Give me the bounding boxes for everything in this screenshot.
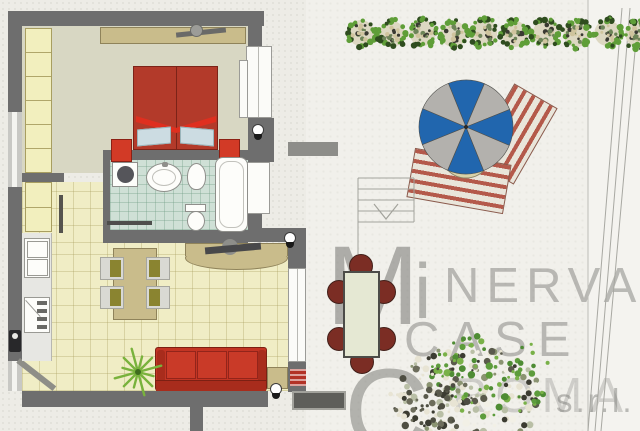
washbasin [146,163,182,192]
pillow [137,127,171,147]
sofa [155,347,267,391]
bathtub [215,157,248,232]
wall-bedroom-right [248,26,262,48]
dining-chair [146,257,170,280]
wall-hall [22,173,64,182]
window-left-bedroom [8,112,22,187]
doormat [292,391,346,410]
watermark-case: CASE [404,316,581,365]
dining-chair [100,257,124,280]
pillow [180,127,214,147]
sofa-cushion [197,351,227,379]
window-living [288,268,306,362]
wall-left [8,11,22,112]
dining-chair [100,286,124,309]
dining-chair [146,286,170,309]
kitchen-sink [24,238,50,278]
towel-bar [107,221,152,225]
door-hinge [284,232,296,249]
door-hinge [252,124,264,141]
shelf-lamp [190,24,203,37]
watermark-srl: s.r.l. [556,384,635,417]
burners [37,301,47,331]
terrace-step [288,142,338,156]
cabinet [25,182,52,232]
wall-top [8,11,264,26]
radiator [290,369,306,386]
door-leaf-hall [59,195,63,233]
window-bedroom [246,46,272,118]
door-leaf-bedroom [239,60,248,118]
outdoor-dining-table [343,271,380,358]
outside-boundary-ground [588,0,640,431]
sofa-backrest [156,380,266,391]
nightstand [111,139,132,162]
stove [24,297,50,333]
wardrobe [25,28,52,173]
toilet [187,211,205,231]
floor-plan: M i NERVA CASE C ROMA s.r.l. [0,0,640,431]
door-hinge [270,383,282,400]
boiler [9,330,21,352]
washing-machine [112,162,138,187]
sofa-cushion [166,351,196,379]
watermark-nerva: NERVA [444,262,640,311]
sofa-cushion [228,351,258,379]
wall-stub [190,407,203,431]
wall-bottom [22,391,268,407]
door-bathroom-terrace [246,162,270,214]
bidet [187,163,206,190]
